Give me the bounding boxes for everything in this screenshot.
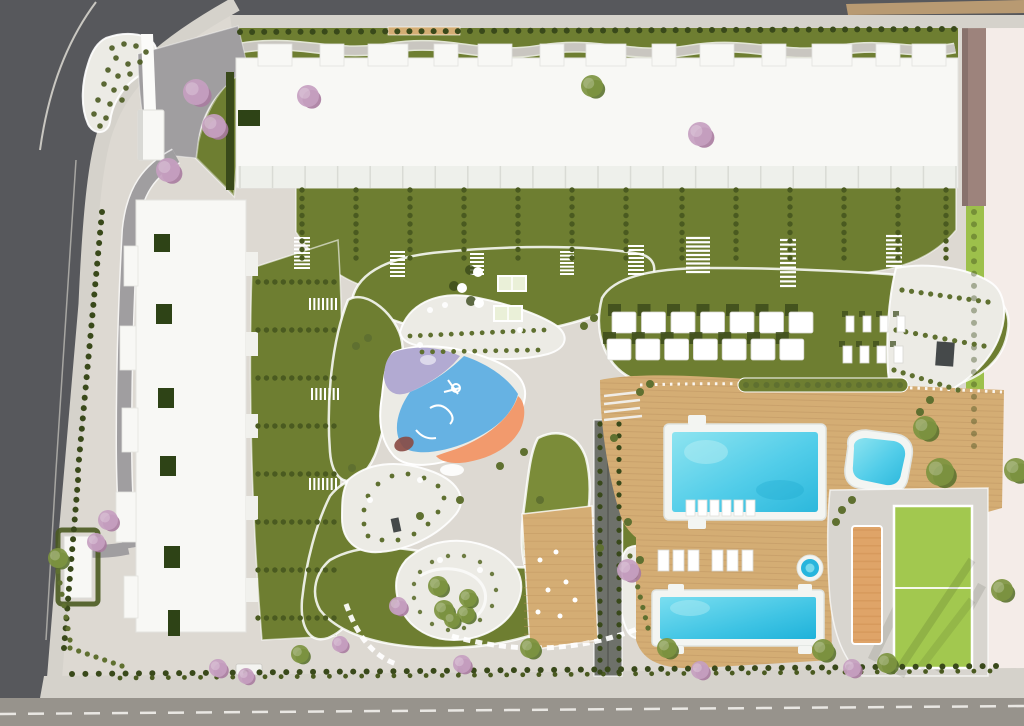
- right-hedge-texture: [971, 246, 977, 252]
- garden-hedge-columns: [679, 238, 684, 243]
- gravel-bed-shrubs: [459, 331, 464, 336]
- cabanas: [730, 312, 754, 333]
- green-tree: [993, 582, 1004, 593]
- bottom-hedgerow: [283, 669, 289, 675]
- top-hedgerow: [903, 26, 909, 32]
- garden-hedge-columns: [515, 196, 520, 201]
- garden-hedge-rows: [264, 423, 269, 428]
- pebble-bed-shrubs: [955, 387, 960, 392]
- left-hedgerow: [87, 343, 93, 349]
- garden-hedge-columns: [461, 221, 466, 226]
- plunge-pool: [845, 430, 913, 494]
- deck-planter-shrubs: [784, 382, 790, 388]
- gravel-bed-shrubs: [428, 333, 433, 338]
- entry-island-shrubs: [95, 97, 101, 103]
- top-hedgerow: [394, 28, 400, 34]
- bottom-hedgerow: [118, 676, 123, 681]
- green-tree: [50, 551, 60, 561]
- right-hedge-texture: [971, 283, 977, 289]
- deck-planter-shrubs: [805, 382, 811, 388]
- garden-hedge-rows: [314, 519, 319, 524]
- deck-planter-shrubs: [764, 382, 770, 388]
- garden-hedge-columns: [461, 238, 466, 243]
- pool-step: [688, 519, 706, 529]
- pebble-bed-shrubs: [928, 379, 933, 384]
- corner-shrubs: [63, 615, 68, 620]
- masterplan-svg: residential-complex-site-plan-aerial-ren…: [0, 0, 1024, 726]
- bottom-hedgerow: [96, 671, 102, 677]
- left-hedgerow: [72, 517, 78, 523]
- entry-island-shrubs: [113, 55, 119, 61]
- bottom-hedgerow: [875, 670, 880, 675]
- garden-hedge-columns: [353, 238, 358, 243]
- shrub-ring: [376, 482, 381, 487]
- bottom-hedgerow: [311, 674, 316, 679]
- top-hedgerow: [479, 28, 485, 34]
- deck-planter-shrubs: [743, 382, 749, 388]
- bottom-hedgerow: [792, 665, 798, 671]
- loungers: [863, 316, 871, 332]
- corner-shrubs: [67, 637, 72, 642]
- bottom-hedgerow: [569, 672, 574, 677]
- bottom-hedgerow: [536, 672, 541, 677]
- poolside-shrubs: [838, 506, 846, 514]
- entry-island-shrubs: [127, 71, 133, 77]
- bottom-hedgerow: [310, 669, 316, 675]
- garden-hedge-columns: [623, 187, 628, 192]
- garden-hedge-rows: [264, 375, 269, 380]
- top-hedgerow: [685, 27, 691, 33]
- shrub-ring: [412, 582, 416, 586]
- dark-walk-hedge: [597, 634, 602, 639]
- top-hedgerow: [794, 27, 800, 33]
- left-hedgerow: [91, 292, 97, 298]
- bottom-hedgerow: [166, 675, 171, 680]
- flower-bed-shrubs: [640, 605, 645, 610]
- garden-hedge-rows: [289, 423, 294, 428]
- garden-hedge-columns: [515, 187, 520, 192]
- entry-island-shrubs: [111, 87, 117, 93]
- garden-hedge-columns: [841, 204, 846, 209]
- shrub-ring: [462, 626, 466, 630]
- bottom-hedgerow: [746, 671, 751, 676]
- bottom-hedgerow: [327, 674, 332, 679]
- pebble-bed-shrubs: [966, 297, 971, 302]
- garden-hedge-rows: [298, 423, 303, 428]
- garden-hedge-columns: [841, 213, 846, 218]
- blossom-tree: [158, 161, 170, 173]
- garden-hedge-rows: [314, 375, 319, 380]
- bottom-hedgerow: [765, 665, 771, 671]
- garden-hedge-columns: [515, 204, 520, 209]
- top-hedgerow: [769, 27, 775, 33]
- bottom-hedgerow: [488, 673, 493, 678]
- bottom-hedgerow: [810, 670, 815, 675]
- deck-planter-shrubs: [835, 382, 841, 388]
- garden-hedge-rows: [255, 423, 260, 428]
- bottom-hedgerow: [440, 673, 445, 678]
- garden-hedge-columns: [407, 247, 412, 252]
- garden-hedge-columns: [299, 255, 304, 260]
- garden-hedge-rows: [281, 423, 286, 428]
- left-hedgerow: [61, 645, 67, 651]
- garden-hedge-columns: [353, 230, 358, 235]
- corner-shrubs: [57, 580, 62, 585]
- garden-hedge-columns: [943, 187, 948, 192]
- right-hedge-texture: [971, 209, 977, 215]
- bottom-hedgerow: [136, 670, 142, 676]
- garden-hedge-columns: [733, 196, 738, 201]
- garden-hedge-columns: [895, 196, 900, 201]
- bottom-hedgerow: [484, 667, 490, 673]
- top-hedgerow: [927, 26, 933, 32]
- gravel-bed-shrubs: [531, 328, 536, 333]
- garden-hedge-rows: [306, 567, 311, 572]
- pebble-bed-shrubs: [913, 331, 918, 336]
- left-hedgerow: [94, 261, 100, 267]
- bottom-hedgerow: [123, 671, 129, 677]
- garden-hedge-rows: [281, 327, 286, 332]
- garden-hedge-rows: [289, 519, 294, 524]
- bottom-hedgerow: [390, 668, 396, 674]
- dark-walk-hedge: [616, 634, 621, 639]
- bottom-hedgerow: [408, 673, 413, 678]
- bottom-hedgerow: [270, 669, 276, 675]
- top-hedgerow: [515, 28, 521, 34]
- pebble-bed-shrubs: [985, 299, 990, 304]
- entry-island-shrubs: [97, 123, 103, 129]
- garden-hedge-columns: [943, 238, 948, 243]
- pebble-bed-shrubs: [919, 376, 924, 381]
- path-shrubs: [520, 448, 528, 456]
- left-hedgerow: [67, 576, 73, 582]
- bottom-hedgerow: [832, 664, 838, 670]
- gravel-bed-shrubs: [462, 349, 467, 354]
- garden-hedge-rows: [281, 375, 286, 380]
- bottom-hedgerow: [511, 667, 517, 673]
- dark-walk-hedge: [597, 610, 602, 615]
- top-hedgerow: [915, 26, 921, 32]
- gravel-boulders: [427, 307, 433, 313]
- garden-hedge-columns: [461, 187, 466, 192]
- dark-walk-hedge: [597, 445, 602, 450]
- garden-hedge-rows: [281, 279, 286, 284]
- bottom-hedgerow: [730, 671, 735, 676]
- path-shrubs: [610, 434, 618, 442]
- garden-hedge-columns: [407, 204, 412, 209]
- dark-walk-hedge: [597, 528, 602, 533]
- bottom-hedgerow: [681, 671, 686, 676]
- dark-walk-hedge: [597, 539, 602, 544]
- left-hedgerow: [86, 353, 92, 359]
- path-shrubs: [364, 334, 372, 342]
- gravel-bed-shrubs: [490, 330, 495, 335]
- left-hedgerow: [65, 596, 71, 602]
- left-hedgerow: [83, 384, 89, 390]
- pebble-bed-shrubs: [937, 382, 942, 387]
- garden-hedge-columns: [895, 213, 900, 218]
- gravel-bed-shrubs: [542, 328, 547, 333]
- garden-hedge-rows: [323, 375, 328, 380]
- garden-hedge-columns: [299, 230, 304, 235]
- left-hedgerow: [78, 436, 84, 442]
- top-hedgerow: [273, 29, 279, 35]
- loungers: [877, 346, 886, 363]
- garden-hedge-columns: [733, 187, 738, 192]
- site-plan-render: residential-complex-site-plan-aerial-ren…: [0, 0, 1024, 726]
- left-hedgerow: [87, 333, 93, 339]
- dark-walk-hedge: [597, 669, 602, 674]
- garden-hedge-columns: [733, 247, 738, 252]
- garden-hedge-rows: [306, 423, 311, 428]
- left-hedgerow: [82, 395, 88, 401]
- garden-hedge-rows: [306, 327, 311, 332]
- left-hedgerow: [95, 250, 101, 256]
- right-hedge-texture: [971, 234, 977, 240]
- deck-planter-shrubs: [753, 382, 759, 388]
- bottom-hedgerow: [591, 666, 597, 672]
- garden-hedge-rows: [281, 567, 286, 572]
- top-hedgerow: [745, 27, 751, 33]
- deck-loungers: [658, 550, 669, 571]
- bottom-hedgerow: [404, 668, 410, 674]
- green-tree: [659, 641, 669, 651]
- garden-hedge-columns: [733, 238, 738, 243]
- cabanas: [760, 312, 784, 333]
- gravel-bed-shrubs: [493, 348, 498, 353]
- gravel-bed-shrubs: [511, 329, 516, 334]
- dark-walk-hedge: [616, 599, 621, 604]
- garden-hedge-columns: [895, 221, 900, 226]
- top-hedgerow: [491, 28, 497, 34]
- deck-planter-shrubs: [825, 382, 831, 388]
- right-hedge-texture: [971, 418, 977, 424]
- pool-loungers: [734, 500, 743, 516]
- deck-planter-shrubs: [856, 382, 862, 388]
- garden-hedge-rows: [264, 327, 269, 332]
- bottom-hedgerow: [966, 663, 972, 669]
- garden-hedge-columns: [569, 204, 574, 209]
- path-shrubs: [580, 322, 588, 330]
- bottom-hedgerow: [182, 675, 187, 680]
- pool-loungers: [698, 500, 707, 516]
- bottom-hedgerow: [375, 674, 380, 679]
- top-hedgerow: [673, 27, 679, 33]
- garden-hedge-columns: [461, 247, 466, 252]
- top-hedgerow: [346, 29, 352, 35]
- garden-hedge-rows: [255, 327, 260, 332]
- cabanas: [612, 312, 636, 333]
- cabanas: [789, 312, 813, 333]
- garden-hedge-rows: [272, 423, 277, 428]
- garden-hedge-columns: [461, 230, 466, 235]
- garden-hedge-columns: [679, 221, 684, 226]
- garden-hedge-columns: [569, 221, 574, 226]
- bottom-hedgerow: [907, 669, 912, 674]
- garden-hedge-columns: [407, 221, 412, 226]
- top-hedgerow: [443, 28, 449, 34]
- right-hedge-texture: [971, 443, 977, 449]
- garden-hedge-columns: [353, 247, 358, 252]
- garden-hedge-rows: [264, 519, 269, 524]
- bottom-hedgerow: [198, 675, 203, 680]
- path-shrubs: [456, 496, 464, 504]
- garden-hedge-rows: [289, 567, 294, 572]
- left-hedgerow: [96, 240, 102, 246]
- bottom-hedgerow: [444, 668, 450, 674]
- path-shrubs: [536, 496, 544, 504]
- blossom-tree: [693, 663, 702, 672]
- dark-walk-hedge: [597, 599, 602, 604]
- garden-hedge-columns: [623, 255, 628, 260]
- bottom-hedgerow: [337, 669, 343, 675]
- pebble-bed-shrubs: [952, 338, 957, 343]
- bottom-hedgerow: [739, 665, 745, 671]
- bottom-hedgerow: [714, 671, 719, 676]
- left-hedgerow: [75, 467, 81, 473]
- shrub-ring: [412, 532, 417, 537]
- deck-planter-shrubs: [846, 382, 852, 388]
- pebble-bed-shrubs: [891, 367, 896, 372]
- garden-hedge-columns: [679, 247, 684, 252]
- shrub-ring: [418, 610, 422, 614]
- garden-hedge-columns: [679, 204, 684, 209]
- pebble-bed-shrubs: [981, 343, 986, 348]
- garden-hedge-rows: [323, 423, 328, 428]
- pebble-bed-shrubs: [899, 287, 904, 292]
- bottom-hedgerow: [605, 666, 611, 672]
- bottom-hedgerow: [939, 663, 945, 669]
- dark-walk-hedge: [597, 433, 602, 438]
- cabanas: [607, 339, 631, 360]
- garden-hedge-columns: [407, 238, 412, 243]
- bottom-hedgerow: [323, 669, 329, 675]
- right-hedge-texture: [971, 308, 977, 314]
- cabanas: [751, 339, 775, 360]
- top-hedgerow: [782, 27, 788, 33]
- blossom-tree: [100, 513, 110, 523]
- top-hedgerow: [661, 27, 667, 33]
- dark-walk-hedge: [597, 646, 602, 651]
- garden-hedge-columns: [943, 213, 948, 218]
- gym-equipment: [546, 588, 551, 593]
- gravel-bed-shrubs: [515, 348, 520, 353]
- bottom-hedgerow: [585, 672, 590, 677]
- shrub-ring: [436, 484, 441, 489]
- gravel-bed-shrubs: [451, 349, 456, 354]
- bottom-hedgerow: [633, 671, 638, 676]
- pool-loungers: [722, 500, 731, 516]
- gravel-bed-shrubs: [525, 348, 530, 353]
- entry-island-shrubs: [123, 85, 129, 91]
- flower-bed-shrubs: [643, 615, 648, 620]
- garden-hedge-columns: [353, 221, 358, 226]
- right-hedge-texture: [971, 221, 977, 227]
- garden-hedge-columns: [733, 213, 738, 218]
- dark-walk-hedge: [616, 622, 621, 627]
- garden-hedge-rows: [314, 471, 319, 476]
- garden-hedge-rows: [331, 327, 336, 332]
- garden-hedge-rows: [314, 279, 319, 284]
- water-highlight: [670, 600, 710, 616]
- top-hedgerow: [419, 28, 425, 34]
- bottom-hedgerow: [417, 668, 423, 674]
- canopy-shadow: [138, 110, 143, 160]
- gravel-bed-shrubs: [408, 334, 413, 339]
- deck-planter-shrubs: [887, 382, 893, 388]
- dark-walk-hedge: [616, 516, 621, 521]
- left-hedgerow: [98, 219, 104, 225]
- left-hedgerow: [93, 271, 99, 277]
- garden-hedge-columns: [299, 187, 304, 192]
- garden-hedge-columns: [515, 213, 520, 218]
- gravel-boulders: [417, 342, 423, 348]
- dark-walk-hedge: [597, 587, 602, 592]
- path-shrubs: [636, 556, 644, 564]
- garden-hedge-columns: [623, 204, 628, 209]
- garden-hedge-columns: [733, 204, 738, 209]
- bottom-hedgerow: [778, 670, 783, 675]
- poolside-shrubs: [636, 388, 644, 396]
- cabanas: [671, 312, 695, 333]
- gravel-bed-shrubs: [483, 349, 488, 354]
- gym-equipment: [538, 558, 543, 563]
- bottom-hedgerow: [794, 670, 799, 675]
- entry-island-shrubs: [103, 115, 109, 121]
- garden-hedge-columns: [733, 230, 738, 235]
- shrub-ring: [426, 522, 431, 527]
- dark-walk-hedge: [597, 504, 602, 509]
- left-hedgerow: [92, 281, 98, 287]
- bottom-hedgerow: [819, 665, 825, 671]
- garden-hedge-rows: [289, 615, 294, 620]
- gravel-boulders: [517, 327, 523, 333]
- deck-loungers: [727, 550, 738, 571]
- shrub-ring: [412, 596, 416, 600]
- garden-hedge-columns: [515, 247, 520, 252]
- top-hedgerow: [467, 28, 473, 34]
- garden-hedge-rows: [264, 279, 269, 284]
- dark-walk-hedge: [616, 480, 621, 485]
- garden-hedge-columns: [733, 221, 738, 226]
- bottom-hedgerow: [176, 670, 182, 676]
- garden-hedge-columns: [943, 255, 948, 260]
- entry-island-shrubs: [133, 43, 139, 49]
- bottom-hedgerow: [953, 663, 959, 669]
- shrub-ring: [362, 508, 367, 513]
- left-hedgerow: [80, 415, 86, 421]
- top-hedgerow: [249, 29, 255, 35]
- garden-hedge-rows: [306, 615, 311, 620]
- garden-hedge-rows: [323, 471, 328, 476]
- blossom-tree: [391, 599, 400, 608]
- garden-hedge-rows: [298, 519, 303, 524]
- left-hedgerow: [73, 497, 79, 503]
- green-tree: [446, 614, 454, 622]
- garden-hedge-columns: [569, 238, 574, 243]
- top-hedgerow: [527, 28, 533, 34]
- garden-hedge-rows: [298, 567, 303, 572]
- pebble-bed-shrubs: [976, 298, 981, 303]
- loungers: [894, 346, 903, 363]
- top-hedgerow: [540, 28, 546, 34]
- garden-hedge-columns: [787, 196, 792, 201]
- bottom-hedgerow: [343, 674, 348, 679]
- left-hedgerow: [90, 302, 96, 308]
- garden-hedge-columns: [623, 213, 628, 218]
- deck-planter-shrubs: [866, 382, 872, 388]
- water-shade: [756, 480, 804, 500]
